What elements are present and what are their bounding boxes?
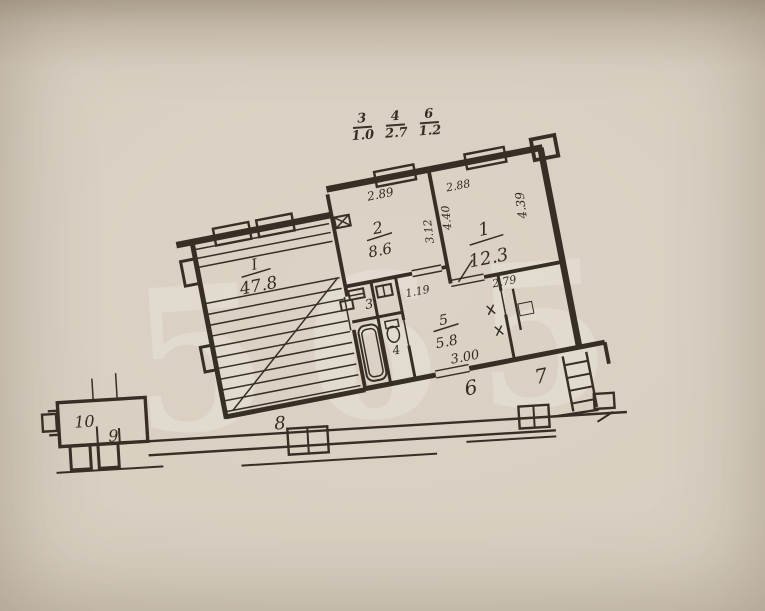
schedule-item: 4 2.7 [384, 109, 409, 142]
porch-outline [57, 397, 148, 446]
dim-label: 4.39 [512, 191, 529, 221]
dim-label: 1.19 [404, 283, 431, 300]
door-opening [404, 320, 409, 346]
closet-room [513, 286, 537, 330]
flue-solid [518, 301, 534, 315]
floor-plan-drawing: I 47.8 [0, 0, 765, 611]
room-area: 12.3 [467, 244, 510, 272]
plan-lower-block: 10 9 8 [40, 342, 629, 477]
schedule-item: 3 1.0 [350, 112, 375, 145]
schedule-number: 6 [419, 107, 439, 124]
dim-label: 2.89 [365, 185, 395, 204]
dim-label: 4.40 [439, 205, 455, 232]
schedule-item: 6 1.2 [417, 107, 442, 140]
porch: 10 9 [41, 397, 163, 474]
door-opening [501, 291, 506, 315]
site-mark-6: 6 [462, 374, 479, 400]
schedule-size: 1.2 [418, 123, 442, 140]
right-exterior-wall [540, 148, 579, 347]
dim-label: 3.12 [421, 218, 437, 244]
schedule-number: 4 [385, 109, 405, 126]
dim-label: 2.88 [444, 177, 472, 195]
yard-wall-inner [149, 430, 556, 455]
porch-pier [42, 414, 57, 432]
pier-mullion [533, 406, 534, 428]
schedule-number: 3 [352, 112, 372, 129]
stair-left-wall [191, 239, 226, 419]
top-exterior-wall [326, 147, 542, 189]
room-number: 4 [390, 342, 401, 357]
door-opening [412, 265, 443, 277]
room-number: 1 [476, 218, 491, 241]
site-mark-8: 8 [274, 413, 287, 435]
room-2: 2.89 3.12 2 8.6 [328, 177, 448, 289]
porch-pier [70, 445, 91, 470]
stairwell-number: I [249, 255, 260, 274]
cabinet-line [383, 285, 385, 296]
scanned-floor-plan-photo: 565 3 1.0 4 2.7 6 1.2 [0, 0, 765, 611]
room-area: 8.6 [367, 239, 394, 261]
porch-pier [98, 443, 119, 468]
partition [513, 289, 521, 330]
site-mark-7: 7 [532, 363, 549, 389]
exterior-ladder [563, 352, 597, 412]
room-area: 5.8 [434, 332, 459, 352]
site-mark-9: 9 [108, 426, 119, 446]
site-mark-10: 10 [74, 412, 95, 432]
schedule-size: 2.7 [385, 125, 409, 142]
pencil-marks [487, 304, 504, 337]
ladder-rungs [564, 361, 595, 404]
stair-top-wall [176, 215, 331, 245]
schedule-size: 1.0 [351, 128, 375, 145]
sink-line [349, 293, 364, 296]
door-leaf [340, 300, 353, 311]
door-opening [450, 274, 485, 286]
door-opening [344, 297, 350, 330]
wall-stub [605, 342, 609, 364]
toilet-bowl [386, 325, 401, 343]
stair-apartment-wall [327, 194, 347, 296]
opening-schedule: 3 1.0 4 2.7 6 1.2 [350, 107, 442, 145]
courtyard-lines [92, 373, 118, 400]
